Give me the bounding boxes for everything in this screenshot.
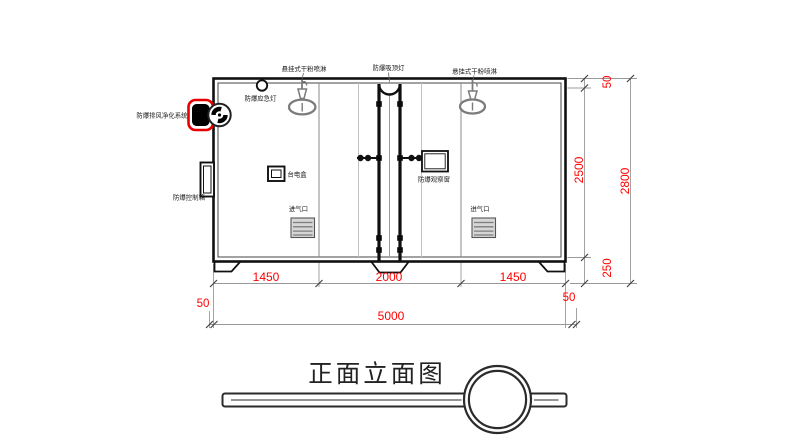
observation-window-icon <box>422 151 448 172</box>
sprinkler-left-label: 悬挂式干粉喷淋 <box>282 64 327 73</box>
title-section-symbol: 正面立面图 <box>223 360 567 433</box>
purification-system-label: 防爆排风净化系统 <box>136 111 188 120</box>
dim-height-middle: 2500 <box>572 156 586 183</box>
dim-width-right: 1450 <box>500 270 527 284</box>
emergency-lamp-icon <box>257 80 267 90</box>
elevation-drawing-canvas: 悬挂式干粉喷淋 防爆吸顶灯 悬挂式干粉喷淋 防爆应急灯 防爆排风净化系统 防爆控… <box>0 0 800 445</box>
observation-window-label: 防爆观察窗 <box>418 175 450 184</box>
dim-total-height: 2800 <box>618 167 632 194</box>
sprinkler-right-label: 悬挂式干粉喷淋 <box>452 67 497 76</box>
drawing-title: 正面立面图 <box>308 360 446 388</box>
air-inlet-right-label: 进气口 <box>470 204 489 213</box>
power-box-icon <box>268 167 285 182</box>
dim-width-center: 2000 <box>376 270 403 284</box>
dim-margin-left: 50 <box>197 298 210 310</box>
ceiling-lamp-label: 防爆吸顶灯 <box>373 63 406 72</box>
power-box-label: 台电盒 <box>288 170 308 179</box>
air-inlet-left-label: 进气口 <box>289 204 308 213</box>
control-box-label: 防爆控制箱 <box>173 193 206 202</box>
purification-device-icon <box>189 100 231 130</box>
front-elevation-svg: 悬挂式干粉喷淋 防爆吸顶灯 悬挂式干粉喷淋 防爆应急灯 防爆排风净化系统 防爆控… <box>0 0 800 445</box>
dim-margin-right: 50 <box>563 292 576 304</box>
dim-height-bottom: 250 <box>602 258 614 277</box>
control-box-icon <box>201 163 215 197</box>
emergency-lamp-label: 防爆应急灯 <box>245 94 278 103</box>
dim-total-width: 5000 <box>378 309 405 323</box>
air-inlet-left-icon <box>291 218 315 238</box>
dim-height-top: 50 <box>602 76 614 89</box>
air-inlet-right-icon <box>472 218 496 238</box>
dim-width-left: 1450 <box>253 270 280 284</box>
